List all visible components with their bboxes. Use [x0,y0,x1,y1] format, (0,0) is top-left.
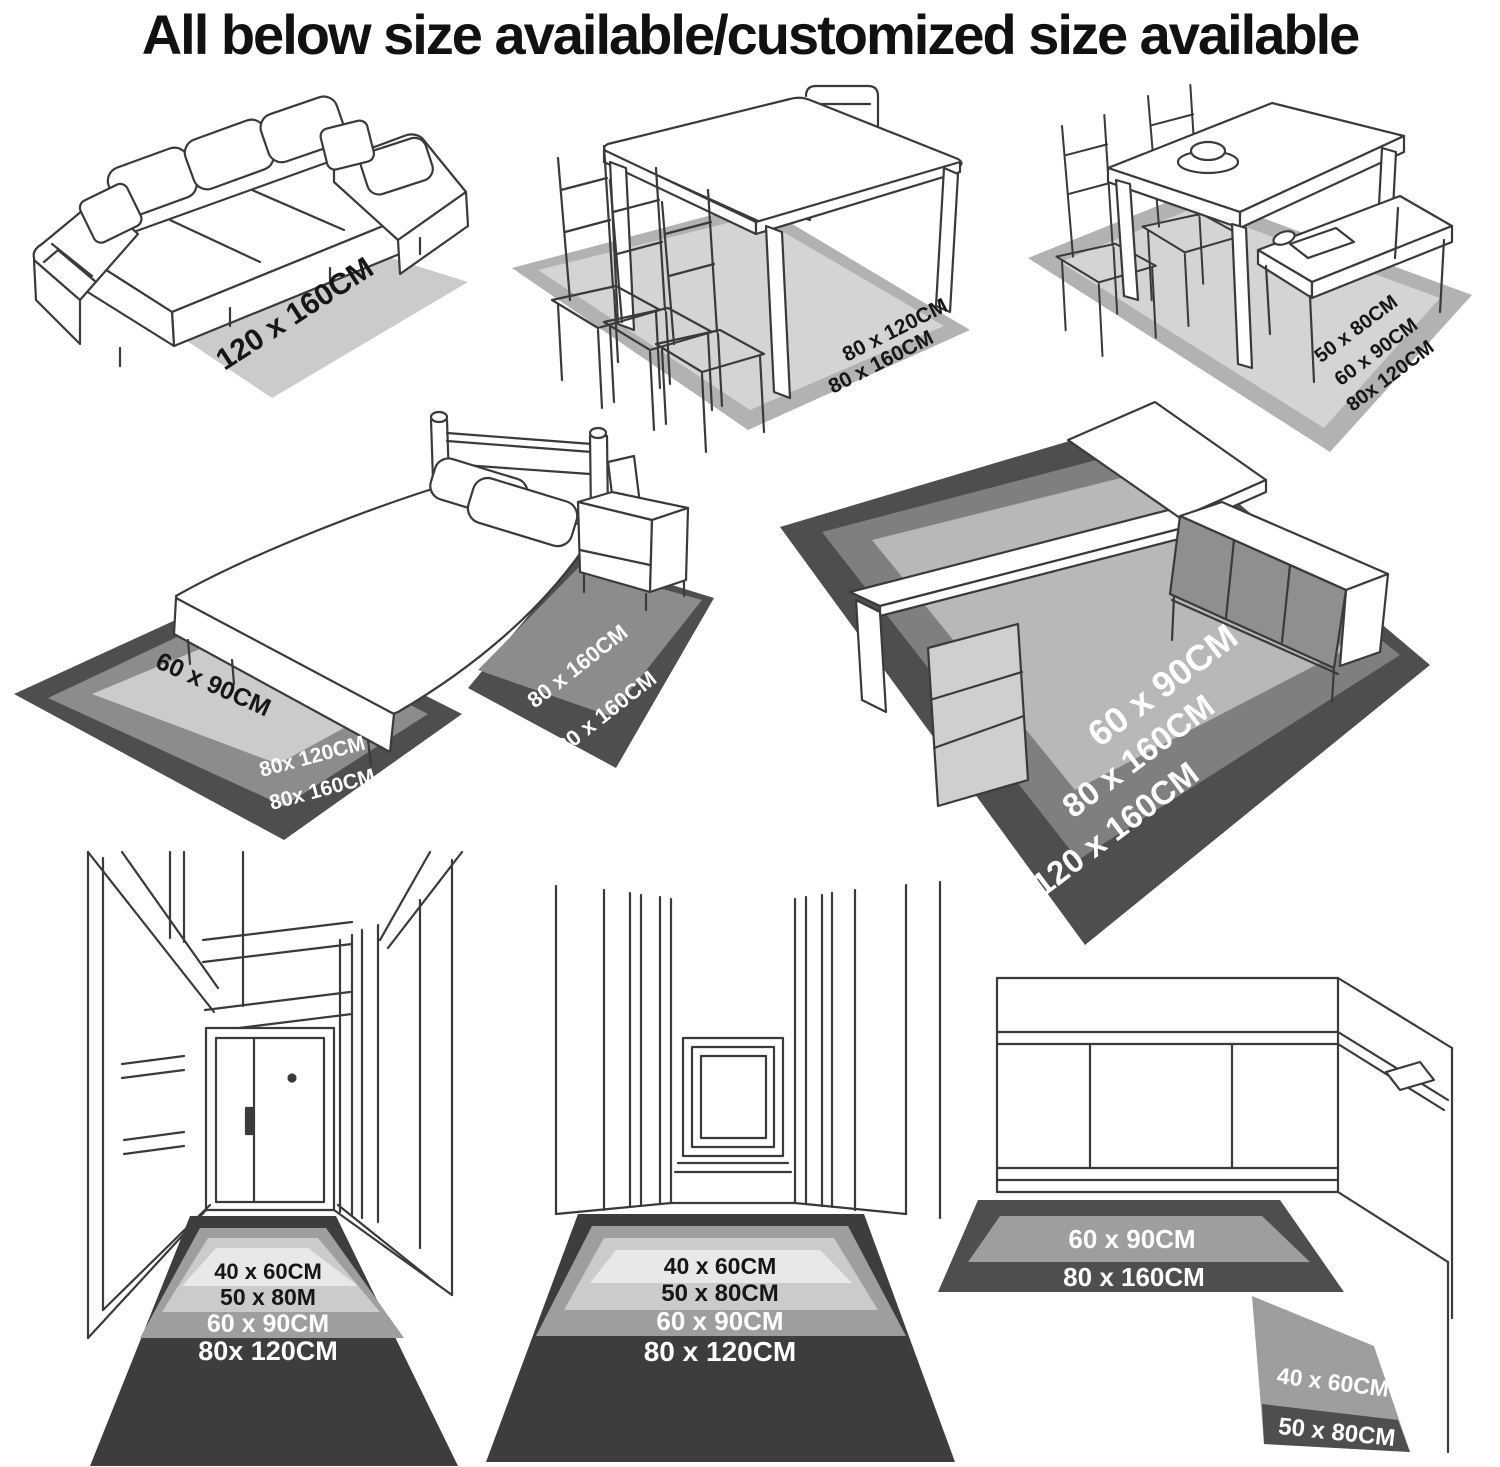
corridor-walls-line-art [556,882,940,1218]
rug-size-label: 80 x 160CM [1063,1262,1205,1292]
scene-dining-bench: 50 x 80CM 60 x 90CM 80x 120CM [1028,85,1472,452]
rug-size-label: 60 x 90CM [656,1306,783,1336]
rug-size-label: 50 x 80CM [661,1280,778,1307]
rug-size-label: 40 x 60CM [214,1259,322,1284]
rug-size-label: 80x 120CM [198,1336,338,1366]
size-illustration: 120 x 160CM [0,0,1500,1467]
rug-size-label: 40 x 60CM [664,1253,777,1279]
rug-size-label: 80 x 120CM [644,1336,797,1367]
scene-kitchen: 60 x 90CM 80 x 160CM 40 x 60CM 50 x 80CM [938,978,1452,1452]
rug-size-chart: All below size available/customized size… [0,0,1500,1467]
scene-dining-room: 80 x 120CM 80 x 160CM [512,86,970,452]
scene-bedroom: 60 x 90CM 80x 120CM 80x 160CM 80 x 160CM… [14,412,714,840]
scene-living-room: 120 x 160CM [34,93,468,398]
scene-hallway: 40 x 60CM 50 x 80M 60 x 90CM 80x 120CM [88,852,462,1466]
rug-size-label: 50 x 80M [220,1284,316,1310]
scene-study-desk: 60 x 90CM 80 x 160CM 120 x 160CM [780,402,1430,945]
scene-corridor: 40 x 60CM 50 x 80CM 60 x 90CM 80 x 120CM [486,882,955,1462]
rug-size-label: 60 x 90CM [1068,1224,1195,1254]
rug-size-label: 60 x 90CM [207,1310,329,1338]
